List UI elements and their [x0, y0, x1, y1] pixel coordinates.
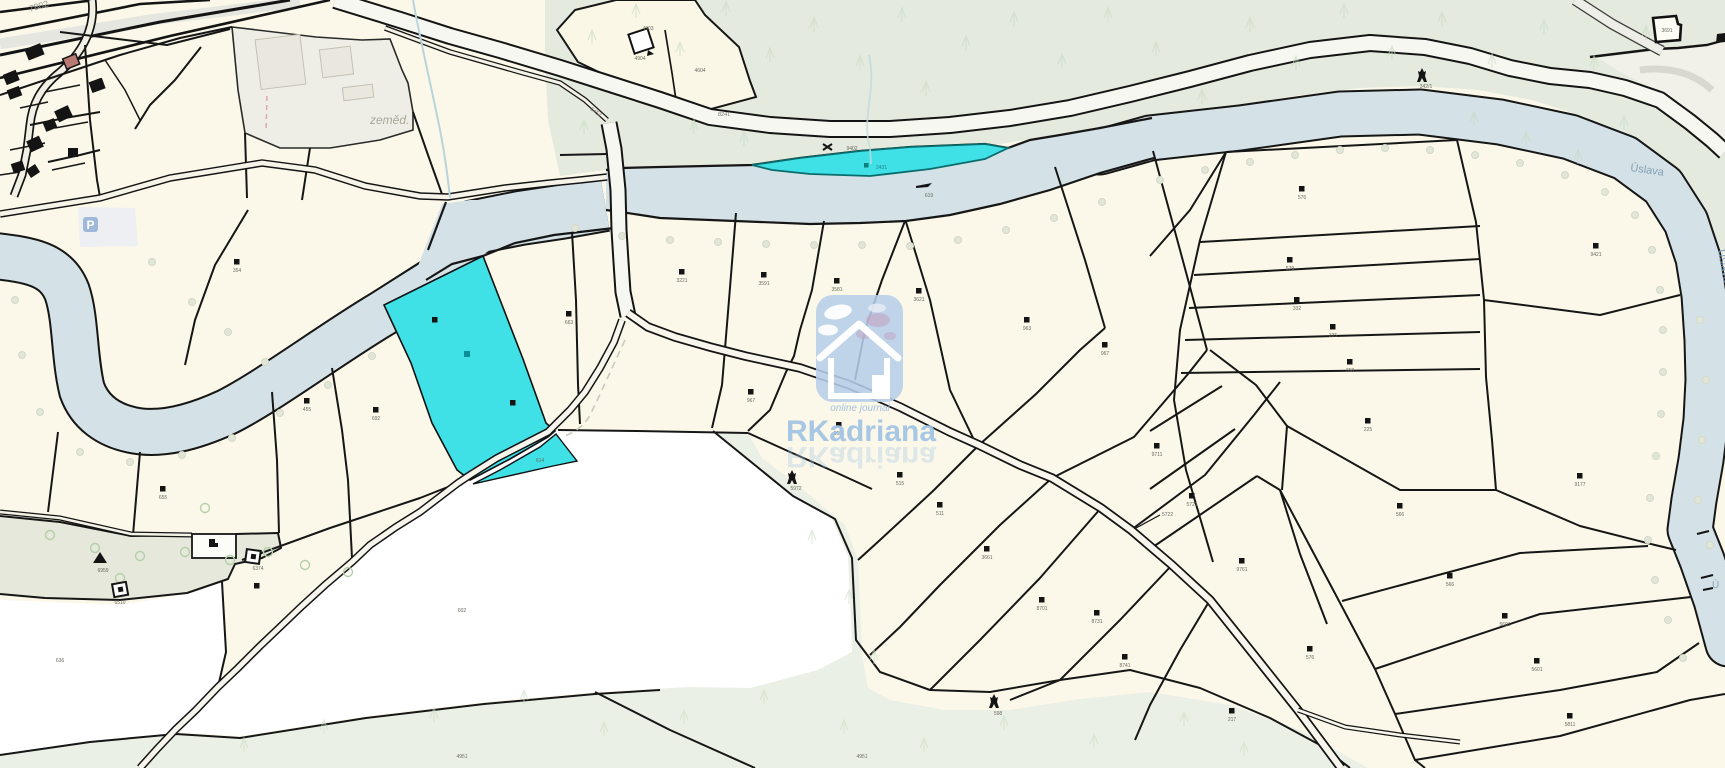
svg-text:4903: 4903: [642, 26, 653, 32]
svg-text:3581: 3581: [831, 287, 842, 293]
svg-text:4604: 4604: [694, 68, 705, 74]
svg-text:6510: 6510: [114, 600, 125, 606]
svg-text:3691: 3691: [1661, 28, 1672, 34]
svg-text:P: P: [86, 218, 94, 232]
svg-text:8731: 8731: [1091, 619, 1102, 625]
svg-text:6959: 6959: [97, 568, 108, 574]
svg-text:515: 515: [896, 481, 905, 487]
svg-text:5722: 5722: [1162, 512, 1173, 518]
svg-text:358: 358: [1346, 368, 1355, 374]
svg-text:511: 511: [936, 511, 944, 517]
svg-text:4904: 4904: [634, 56, 645, 62]
svg-text:335: 335: [1329, 333, 1338, 339]
svg-text:5721: 5721: [1186, 502, 1197, 508]
svg-text:598: 598: [994, 711, 1003, 717]
svg-text:9711: 9711: [1152, 452, 1163, 458]
svg-text:619: 619: [925, 193, 934, 199]
svg-text:9761: 9761: [1236, 567, 1247, 573]
svg-text:455: 455: [303, 407, 312, 413]
svg-text:566: 566: [1446, 582, 1455, 588]
svg-text:online journal: online journal: [830, 403, 890, 414]
svg-text:5601: 5601: [1531, 667, 1542, 673]
svg-text:967: 967: [1101, 351, 1110, 357]
svg-text:963: 963: [1023, 326, 1032, 332]
svg-text:655: 655: [159, 495, 168, 501]
svg-text:5691: 5691: [1499, 622, 1510, 628]
svg-text:579: 579: [1286, 266, 1295, 272]
svg-text:9421: 9421: [1590, 252, 1601, 258]
svg-text:5811: 5811: [1565, 722, 1576, 728]
svg-text:342/1: 342/1: [1420, 84, 1433, 90]
svg-text:5972: 5972: [790, 486, 801, 492]
svg-text:636: 636: [56, 658, 65, 664]
svg-text:8241: 8241: [718, 112, 730, 118]
svg-text:692: 692: [372, 416, 381, 422]
svg-text:332: 332: [1293, 306, 1302, 312]
svg-text:3621: 3621: [913, 297, 924, 303]
svg-text:6374: 6374: [252, 566, 263, 572]
svg-text:4951: 4951: [856, 754, 867, 760]
svg-text:3661: 3661: [981, 555, 992, 561]
svg-text:zeměd.: zeměd.: [369, 113, 409, 127]
svg-text:576: 576: [1298, 195, 1307, 201]
svg-text:8741: 8741: [1119, 663, 1130, 669]
svg-text:4951: 4951: [456, 754, 467, 760]
svg-text:225: 225: [1364, 427, 1373, 433]
svg-text:967: 967: [747, 398, 756, 404]
svg-text:576: 576: [1306, 655, 1315, 661]
svg-text:217: 217: [1228, 717, 1237, 723]
svg-text:9402: 9402: [846, 146, 857, 152]
svg-text:602: 602: [458, 608, 467, 614]
svg-text:3221: 3221: [676, 278, 687, 284]
svg-text:663: 663: [565, 320, 574, 326]
svg-text:RKadriana: RKadriana: [786, 440, 936, 473]
svg-text:9177: 9177: [1574, 482, 1585, 488]
svg-text:3591: 3591: [758, 281, 769, 287]
svg-text:566: 566: [1396, 512, 1405, 518]
svg-text:354: 354: [233, 268, 242, 274]
svg-text:Ú: Ú: [1712, 578, 1719, 591]
svg-text:2431: 2431: [876, 165, 887, 171]
svg-text:8701: 8701: [1036, 606, 1047, 612]
svg-text:614: 614: [536, 458, 545, 464]
